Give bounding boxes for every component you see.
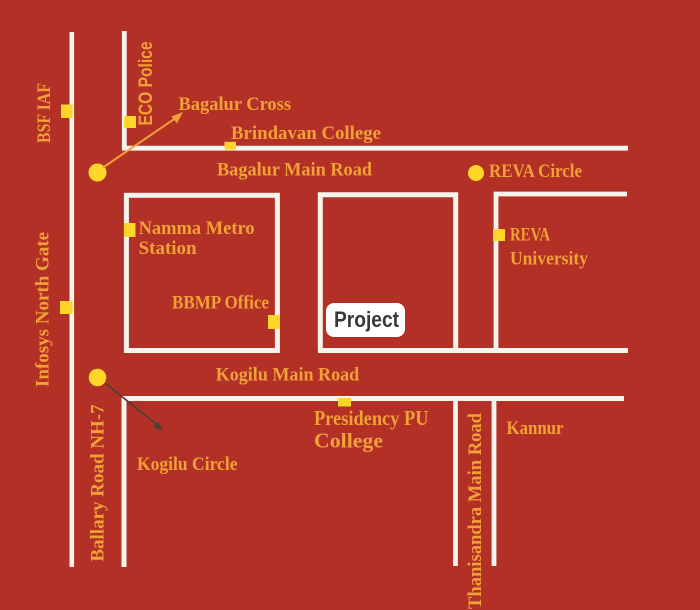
svg-text:Kogilu Circle: Kogilu Circle bbox=[137, 454, 238, 475]
svg-text:Brindavan College: Brindavan College bbox=[231, 123, 381, 144]
svg-text:Kogilu Main Road: Kogilu Main Road bbox=[216, 364, 360, 385]
svg-text:College: College bbox=[314, 428, 383, 452]
svg-text:Ballary Road NH-7: Ballary Road NH-7 bbox=[88, 404, 109, 562]
svg-text:Presidency PU: Presidency PU bbox=[314, 406, 429, 430]
svg-text:Thanisandra Main Road: Thanisandra Main Road bbox=[465, 413, 486, 609]
svg-text:Bagalur Main Road: Bagalur Main Road bbox=[217, 159, 372, 180]
svg-text:REVA: REVA bbox=[510, 224, 550, 245]
svg-text:Station: Station bbox=[139, 238, 197, 259]
svg-text:Kannur: Kannur bbox=[507, 418, 564, 439]
svg-text:University: University bbox=[510, 248, 588, 269]
svg-text:Infosys North Gate: Infosys North Gate bbox=[33, 232, 54, 387]
svg-text:ECO Police: ECO Police bbox=[136, 42, 157, 126]
svg-text:BBMP Office: BBMP Office bbox=[172, 293, 269, 314]
svg-text:REVA Circle: REVA Circle bbox=[489, 161, 582, 182]
svg-text:Bagalur Cross: Bagalur Cross bbox=[179, 94, 292, 115]
svg-text:BSF IAF: BSF IAF bbox=[34, 83, 55, 143]
svg-text:Namma Metro: Namma Metro bbox=[139, 218, 255, 239]
svg-text:Project: Project bbox=[334, 307, 400, 332]
